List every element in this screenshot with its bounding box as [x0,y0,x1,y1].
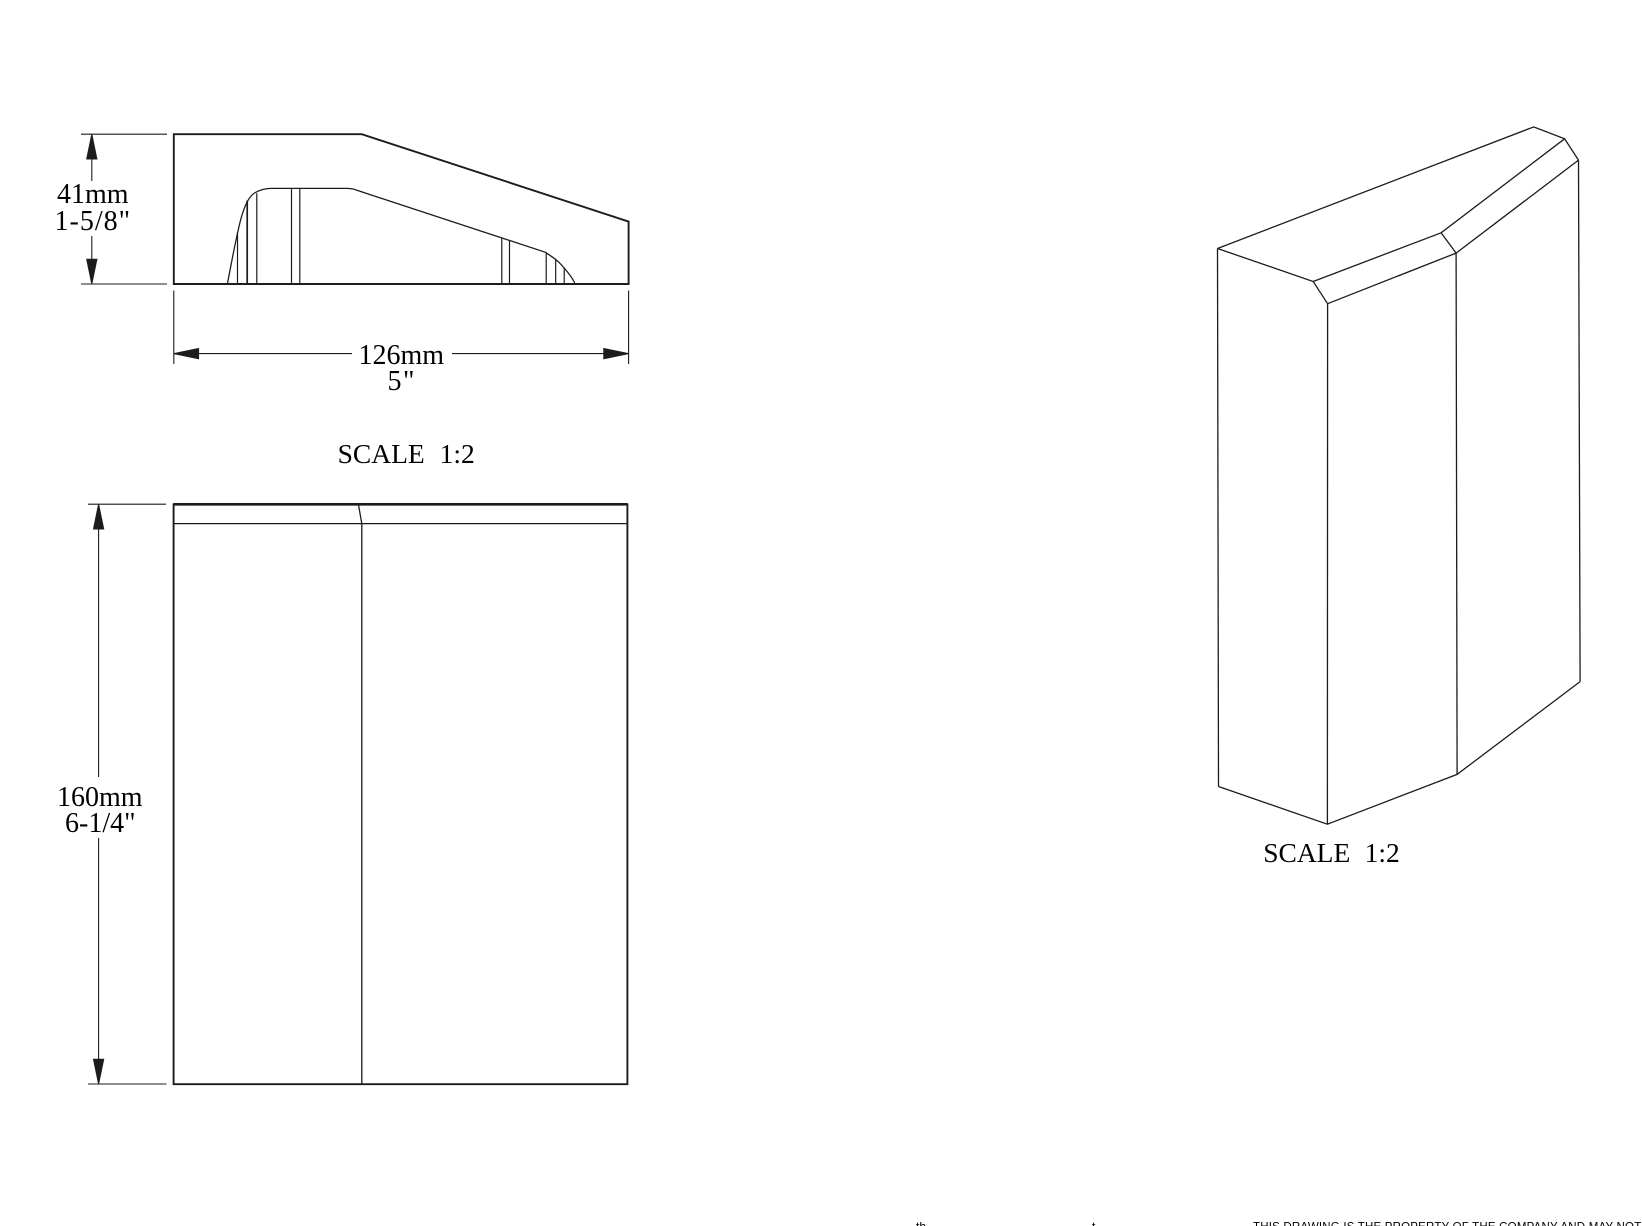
svg-text:1:2: 1:2 [440,438,475,469]
svg-text:5": 5" [388,366,416,397]
svg-text:SCALE: SCALE [338,438,425,469]
svg-text:SCALE: SCALE [1263,837,1350,868]
svg-text:t: t [1092,1220,1096,1226]
svg-text:1-5/8": 1-5/8" [55,206,132,237]
svg-text:6-1/4": 6-1/4" [65,808,136,839]
svg-text:th: th [916,1220,926,1226]
svg-text:THIS DRAWING IS THE PROPERTY O: THIS DRAWING IS THE PROPERTY OF THE COMP… [1253,1222,1642,1226]
svg-text:1:2: 1:2 [1365,837,1400,868]
